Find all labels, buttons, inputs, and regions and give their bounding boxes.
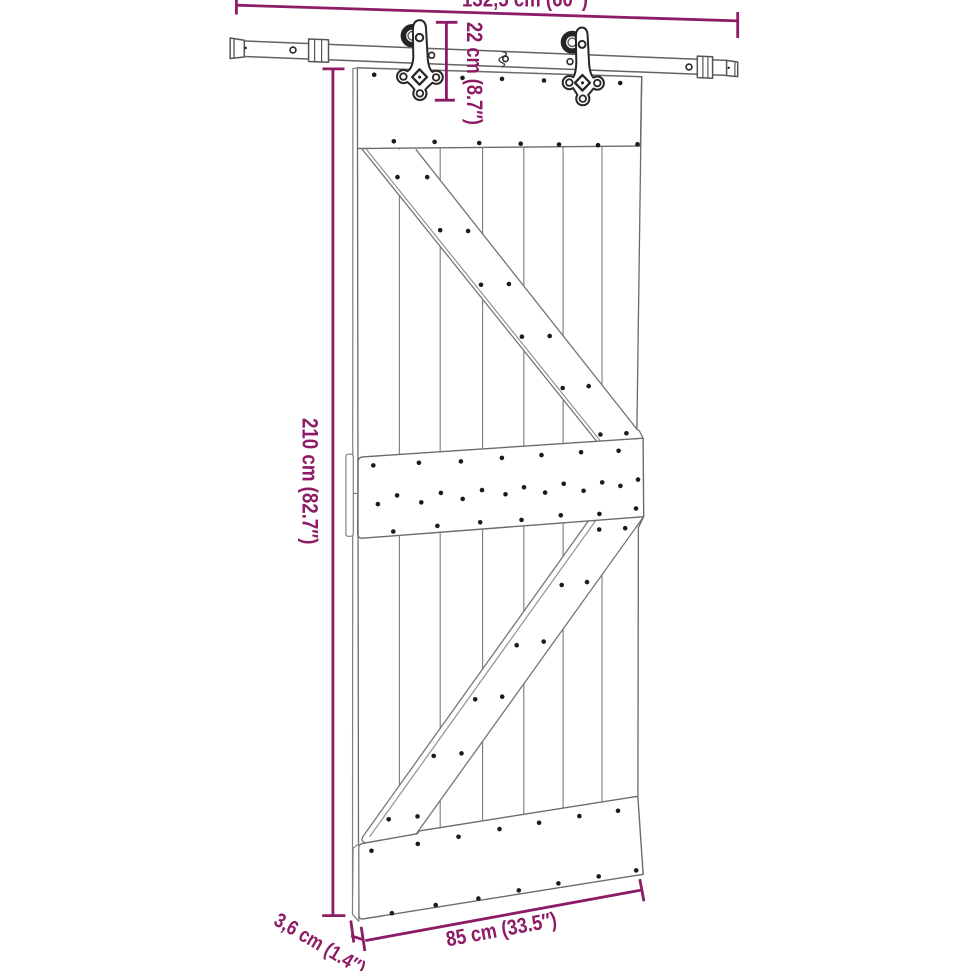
svg-text:132,5 cm (60″): 132,5 cm (60″) xyxy=(462,0,588,12)
svg-text:22 cm (8.7″): 22 cm (8.7″) xyxy=(462,22,487,125)
svg-text:210 cm (82.7″): 210 cm (82.7″) xyxy=(298,418,323,545)
